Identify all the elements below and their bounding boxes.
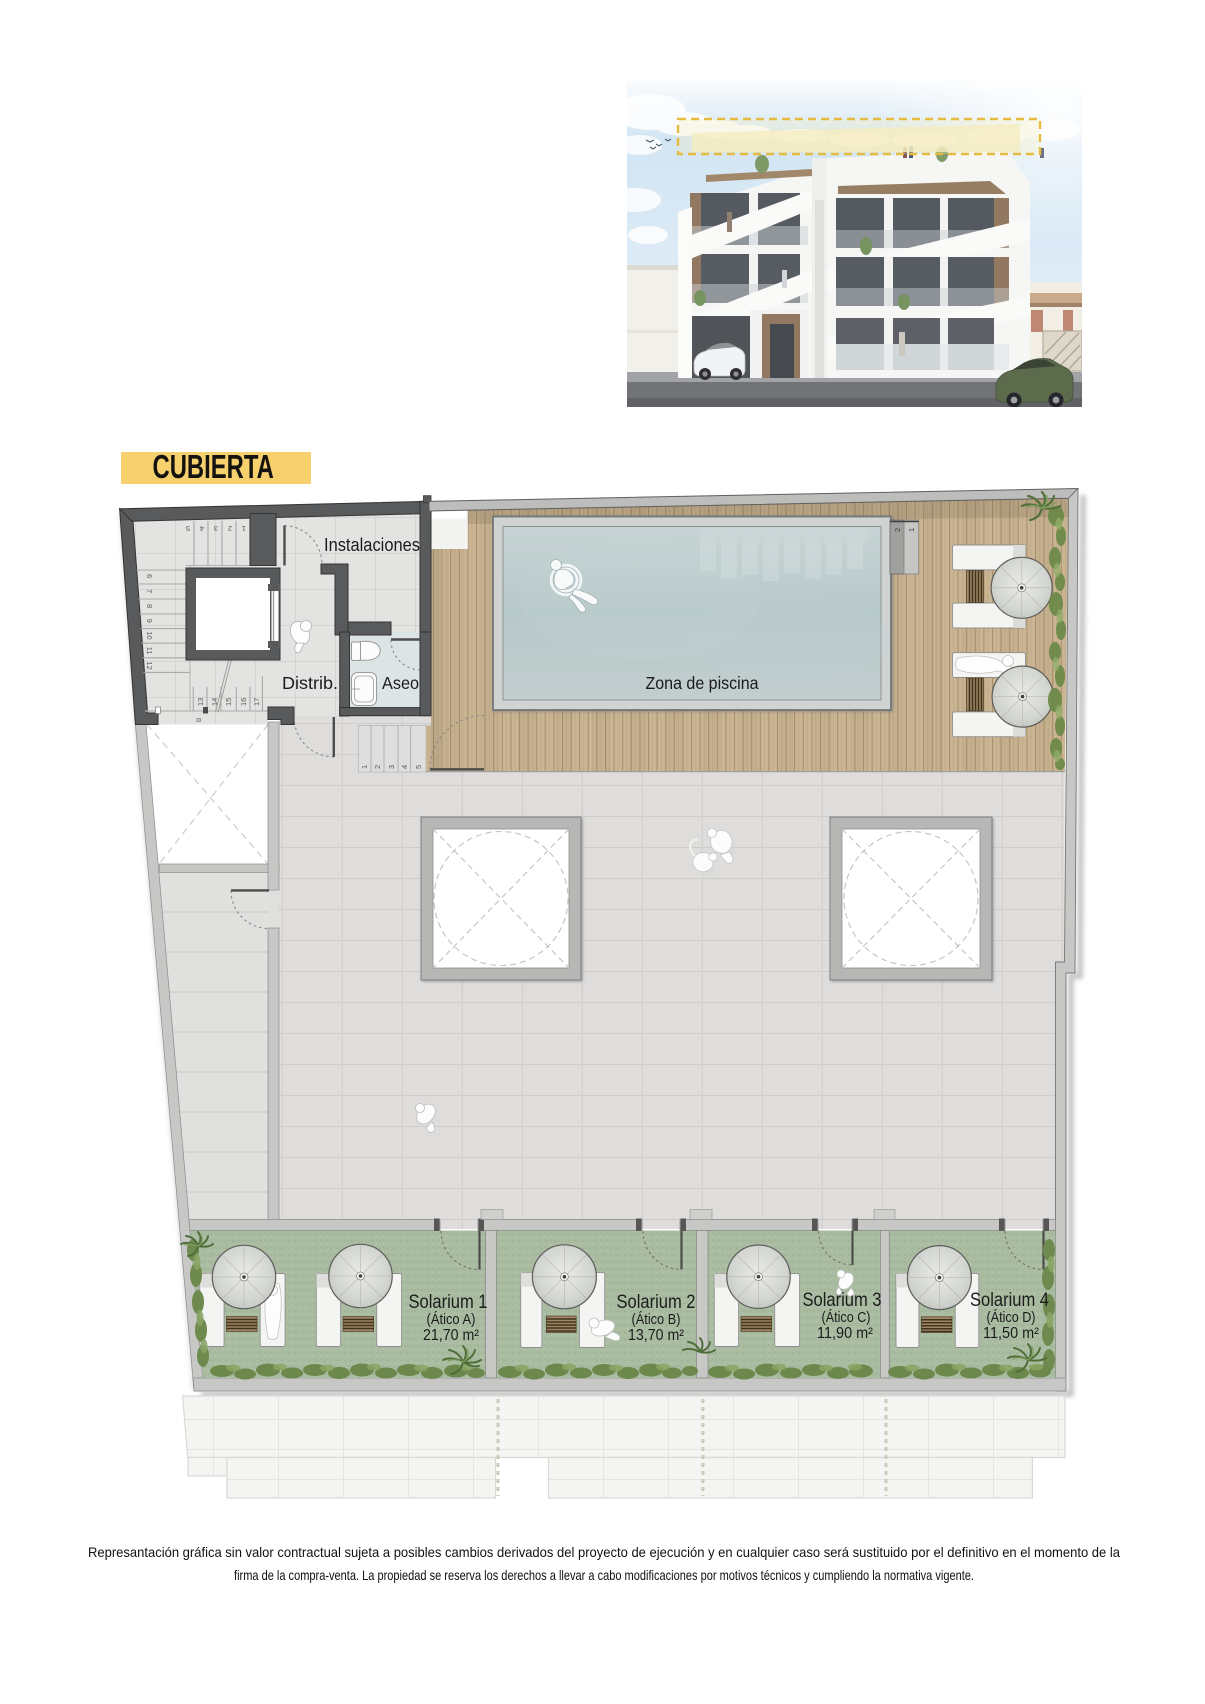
svg-text:Distrib.: Distrib. — [282, 673, 338, 693]
svg-text:(Ático C): (Ático C) — [822, 1309, 871, 1326]
svg-text:Solarium 2: Solarium 2 — [617, 1292, 696, 1313]
svg-text:(Ático B): (Ático B) — [632, 1311, 681, 1328]
svg-text:5: 5 — [414, 765, 423, 769]
svg-text:1: 1 — [360, 765, 369, 769]
svg-text:3: 3 — [214, 524, 218, 533]
svg-text:8: 8 — [145, 604, 154, 608]
svg-text:11,50 m²: 11,50 m² — [983, 1325, 1039, 1342]
svg-text:21,70 m²: 21,70 m² — [423, 1327, 479, 1344]
svg-text:Solarium 1: Solarium 1 — [409, 1292, 488, 1313]
svg-text:13,70 m²: 13,70 m² — [628, 1327, 684, 1344]
svg-text:Solarium 3: Solarium 3 — [803, 1290, 882, 1311]
svg-text:10: 10 — [145, 631, 154, 639]
svg-text:6: 6 — [145, 574, 154, 578]
svg-text:16: 16 — [239, 698, 248, 706]
svg-text:13: 13 — [196, 698, 205, 706]
svg-text:Instalaciones: Instalaciones — [324, 535, 420, 555]
svg-text:9: 9 — [145, 619, 154, 623]
svg-text:(Ático D): (Ático D) — [987, 1309, 1036, 1326]
svg-text:2: 2 — [893, 528, 902, 532]
svg-text:firma de la compra-venta. La p: firma de la compra-venta. La propiedad s… — [234, 1568, 974, 1583]
svg-text:12: 12 — [145, 661, 154, 669]
svg-text:17: 17 — [252, 698, 261, 706]
svg-text:7: 7 — [145, 589, 154, 593]
svg-text:Aseo: Aseo — [382, 673, 419, 693]
svg-text:11,90 m²: 11,90 m² — [817, 1325, 873, 1342]
svg-text:Zona de piscina: Zona de piscina — [646, 673, 759, 693]
svg-text:CUBIERTA: CUBIERTA — [153, 450, 274, 486]
svg-text:Represantación gráfica sin val: Represantación gráfica sin valor contrac… — [88, 1545, 1120, 1560]
svg-text:11: 11 — [145, 647, 154, 655]
svg-text:Solarium 4: Solarium 4 — [970, 1290, 1049, 1311]
svg-text:B: B — [196, 718, 203, 722]
svg-text:1: 1 — [242, 524, 246, 533]
svg-text:15: 15 — [224, 698, 233, 706]
svg-text:3: 3 — [387, 765, 396, 769]
svg-text:4: 4 — [400, 765, 409, 769]
svg-text:5: 5 — [186, 524, 190, 533]
svg-text:2: 2 — [228, 524, 232, 533]
svg-text:2: 2 — [373, 765, 382, 769]
svg-text:4: 4 — [200, 524, 204, 533]
svg-text:1: 1 — [907, 528, 916, 532]
svg-text:(Ático A): (Ático A) — [427, 1311, 476, 1328]
